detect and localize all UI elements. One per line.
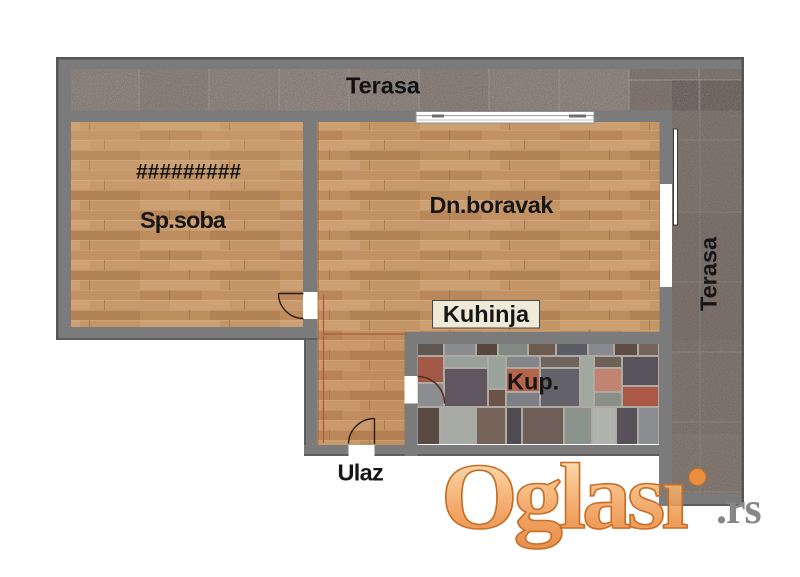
svg-text:Oglası: Oglası <box>441 444 688 548</box>
svg-text:Terasa: Terasa <box>346 73 421 99</box>
svg-text:Ulaz: Ulaz <box>338 460 384 486</box>
svg-text:Kup.: Kup. <box>507 369 559 395</box>
svg-text:#########: ######### <box>136 161 241 184</box>
svg-text:Sp.soba: Sp.soba <box>140 207 227 233</box>
svg-text:Kuhinja: Kuhinja <box>443 301 530 327</box>
svg-text:.rs: .rs <box>716 484 762 533</box>
svg-text:Terasa: Terasa <box>696 236 722 311</box>
svg-text:Dn.boravak: Dn.boravak <box>430 192 555 218</box>
